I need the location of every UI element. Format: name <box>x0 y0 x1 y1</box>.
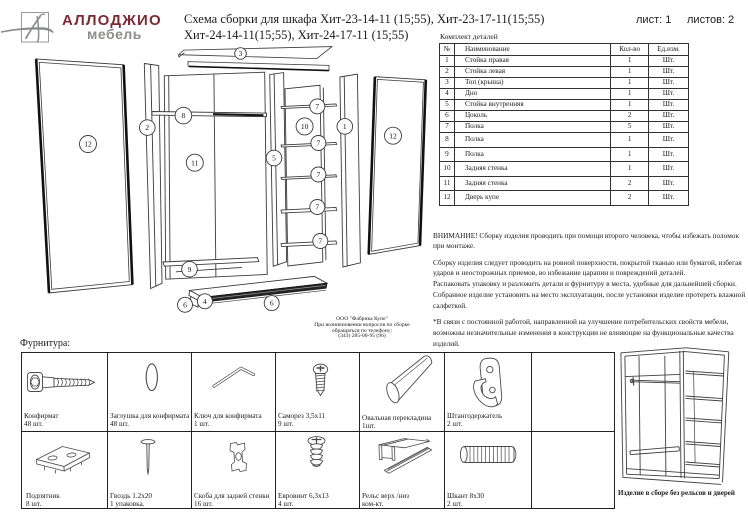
svg-text:6: 6 <box>183 300 187 309</box>
svg-text:2: 2 <box>145 123 149 132</box>
svg-text:9: 9 <box>188 265 192 274</box>
svg-text:12: 12 <box>389 131 397 140</box>
svg-text:4: 4 <box>203 297 207 306</box>
svg-text:5: 5 <box>272 154 276 163</box>
svg-text:11: 11 <box>191 158 198 167</box>
svg-text:7: 7 <box>318 237 322 246</box>
svg-text:12: 12 <box>84 140 92 149</box>
svg-text:8: 8 <box>182 111 186 120</box>
svg-text:10: 10 <box>301 122 309 131</box>
svg-text:1: 1 <box>343 122 347 131</box>
svg-text:6: 6 <box>270 299 274 308</box>
svg-text:7: 7 <box>315 102 319 111</box>
svg-text:7: 7 <box>315 203 319 212</box>
svg-text:3: 3 <box>239 50 243 58</box>
svg-text:7: 7 <box>317 139 321 148</box>
svg-text:7: 7 <box>317 170 321 179</box>
